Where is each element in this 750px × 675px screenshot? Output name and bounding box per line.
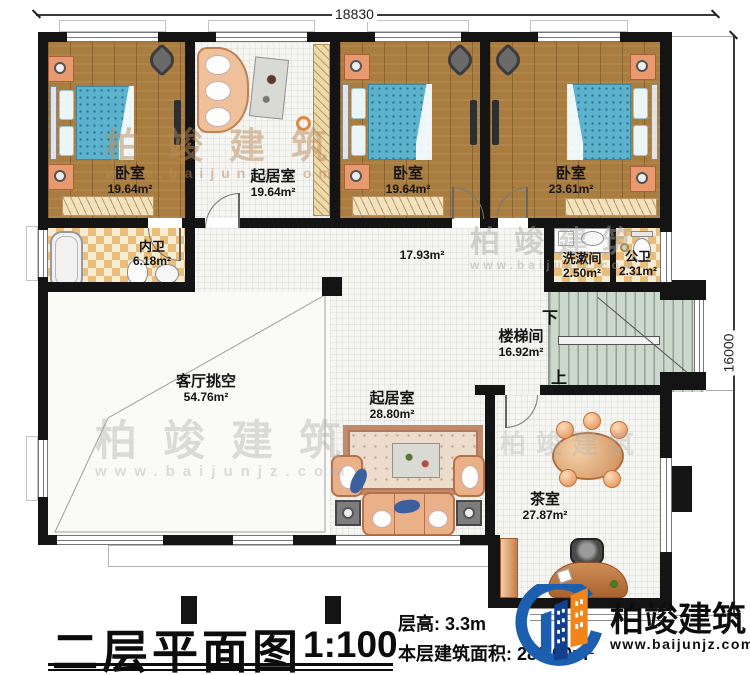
armchair [453, 455, 485, 497]
column [322, 277, 342, 296]
wall [38, 218, 148, 228]
wall [485, 395, 495, 545]
tv [174, 100, 181, 145]
pillow [351, 125, 366, 156]
nightstand [630, 166, 656, 192]
sofa-pillow [428, 510, 448, 528]
window [38, 230, 48, 277]
wash-basin [558, 231, 574, 246]
lamp-icon [463, 507, 475, 519]
sofa-cushion [205, 55, 231, 75]
lamp-icon [350, 60, 362, 72]
exterior-bump [672, 466, 692, 512]
bedroom3-rug [565, 198, 657, 216]
room-area: 23.61m² [549, 183, 594, 196]
bed [567, 84, 631, 160]
wall [660, 388, 672, 458]
title-underline [48, 663, 393, 666]
window [375, 32, 461, 42]
sofa-pillow [372, 510, 392, 528]
wall [293, 535, 336, 545]
plan-scale: 1:100 [303, 624, 398, 666]
room-area: 54.76m² [176, 391, 236, 404]
room-name: 茶室 [523, 492, 568, 509]
logo-url: www.baijunjz.com [610, 636, 750, 652]
stool [559, 469, 577, 487]
room-name: 起居室 [250, 169, 295, 186]
dimension-extension [706, 390, 733, 391]
lamp-icon [350, 170, 362, 182]
wall [544, 218, 554, 292]
room-area: 2.31m² [619, 265, 657, 278]
lamp-icon [636, 172, 648, 184]
lamp-icon [636, 60, 648, 72]
study-table [249, 56, 289, 119]
room-name: 起居室 [369, 391, 414, 408]
window-sill [367, 20, 469, 32]
window [233, 535, 293, 545]
room-area: 19.64m² [250, 186, 295, 199]
room-name: 客厅挑空 [176, 374, 236, 391]
room-area: 17.93m² [400, 249, 445, 262]
wall [475, 385, 505, 395]
window [660, 458, 672, 552]
dimension-line-right [733, 36, 735, 616]
sofa-cushion [461, 465, 479, 489]
room-name: 卧室 [549, 166, 594, 183]
room-label-bedroom2: 卧室 19.64m² [386, 166, 431, 196]
room-name: 卧室 [108, 166, 153, 183]
lamp-icon [54, 170, 66, 182]
window [336, 535, 460, 545]
bed [76, 86, 134, 160]
nightstand [48, 56, 74, 82]
room-label-washroom: 洗漱间 2.50m² [562, 252, 601, 280]
wall [488, 535, 500, 608]
wall [330, 32, 340, 228]
room-label-living: 起居室 28.80m² [369, 391, 414, 421]
door-leaf [452, 187, 454, 219]
room-name: 卧室 [386, 166, 431, 183]
porch-column [325, 596, 341, 624]
sink [581, 231, 604, 246]
sofa-cushion [205, 81, 231, 101]
wardrobe [313, 44, 330, 216]
plan-title: 二层平面图 [52, 616, 302, 675]
dimension-right-value: 16000 [720, 331, 736, 376]
dimension-extension [672, 36, 733, 37]
room-name: 公卫 [619, 250, 657, 265]
side-table [335, 500, 361, 526]
pillow [633, 125, 648, 156]
floor-plan-canvas: 卧室 19.64m² 起居室 19.64m² 卧室 19.64m² 卧室 23.… [0, 0, 750, 675]
room-label-stairwell: 楼梯间 16.92m² [498, 329, 543, 359]
door-leaf [526, 187, 528, 218]
door-leaf [505, 395, 507, 428]
tv [470, 100, 477, 145]
lamp-icon [54, 62, 66, 74]
window [216, 32, 307, 42]
room-area: 6.18m² [133, 255, 171, 268]
wall [660, 32, 672, 232]
window [660, 232, 672, 282]
title-underline [48, 669, 393, 671]
room-area: 19.64m² [108, 183, 153, 196]
room-area: 27.87m² [523, 509, 568, 522]
door-leaf [238, 193, 240, 228]
room-area: 19.64m² [386, 183, 431, 196]
window-sill [59, 20, 166, 32]
door-leaf [179, 228, 181, 261]
wall [185, 32, 195, 228]
wall [38, 277, 48, 440]
void-opening-outline [38, 282, 338, 552]
window [538, 32, 620, 42]
window [57, 535, 163, 545]
tv [492, 100, 499, 145]
window [38, 440, 48, 497]
room-label-study: 起居室 19.64m² [250, 169, 295, 199]
dimension-top-value: 18830 [332, 6, 377, 22]
room-label-bedroom1: 卧室 19.64m² [108, 166, 153, 196]
wall [163, 535, 233, 545]
wall [544, 282, 672, 292]
wall [610, 228, 616, 292]
room-label-void: 客厅挑空 54.76m² [176, 374, 236, 404]
three-seat-sofa [362, 492, 455, 536]
stool [610, 421, 628, 439]
ceiling-ring [296, 116, 311, 131]
plant-icon [610, 580, 618, 588]
stair-up-label: 上 [551, 364, 567, 388]
bed-headboard [342, 84, 349, 160]
room-label-inner-bath: 内卫 6.18m² [133, 240, 171, 268]
window-sill [26, 226, 38, 281]
wall [38, 32, 48, 230]
bed-headboard [50, 86, 57, 160]
room-label-bedroom3: 卧室 23.61m² [549, 166, 594, 196]
window-sill [530, 20, 628, 32]
wall [240, 218, 452, 228]
room-area: 28.80m² [369, 408, 414, 421]
wall [38, 497, 48, 545]
stair-down-label: 下 [542, 304, 558, 328]
coffee-table [392, 443, 440, 478]
window-sill [208, 20, 315, 32]
logo-mark-icon [512, 584, 608, 670]
stair-bay-window [694, 300, 704, 372]
window [67, 32, 158, 42]
wall [38, 282, 195, 292]
bed [368, 84, 432, 160]
logo-name: 柏竣建筑 [610, 592, 746, 641]
pillow [59, 90, 74, 120]
room-label-tea-room: 茶室 27.87m² [523, 492, 568, 522]
pillow [633, 88, 648, 119]
room-name: 楼梯间 [498, 329, 543, 346]
nightstand [344, 164, 370, 190]
room-area: 2.50m² [562, 267, 601, 280]
wall [185, 218, 195, 292]
toilet-tank [631, 231, 653, 237]
bed-headboard [651, 84, 658, 160]
wall [480, 32, 490, 228]
side-table [456, 500, 482, 526]
room-area: 16.92m² [498, 346, 543, 359]
pillow [351, 88, 366, 119]
window-sill [26, 436, 38, 501]
pillow [59, 126, 74, 156]
sofa-cushion [205, 107, 231, 127]
nightstand [48, 164, 74, 190]
room-label-corridor: 17.93m² [400, 249, 445, 262]
office-chair [570, 538, 604, 565]
stool [583, 412, 601, 430]
bedroom2-rug [352, 196, 444, 216]
nightstand [344, 54, 370, 80]
stair-bay-wall [660, 280, 706, 300]
lamp-icon [342, 507, 354, 519]
stool [603, 470, 621, 488]
room-name: 内卫 [133, 240, 171, 255]
room-name: 洗漱间 [562, 252, 601, 267]
bedroom1-rug [62, 196, 154, 216]
stair-bay-wall [660, 372, 706, 390]
floor-height: 层高: 3.3m [398, 610, 486, 636]
stool [556, 421, 574, 439]
room-label-public-toilet: 公卫 2.31m² [619, 250, 657, 278]
nightstand [630, 54, 656, 80]
